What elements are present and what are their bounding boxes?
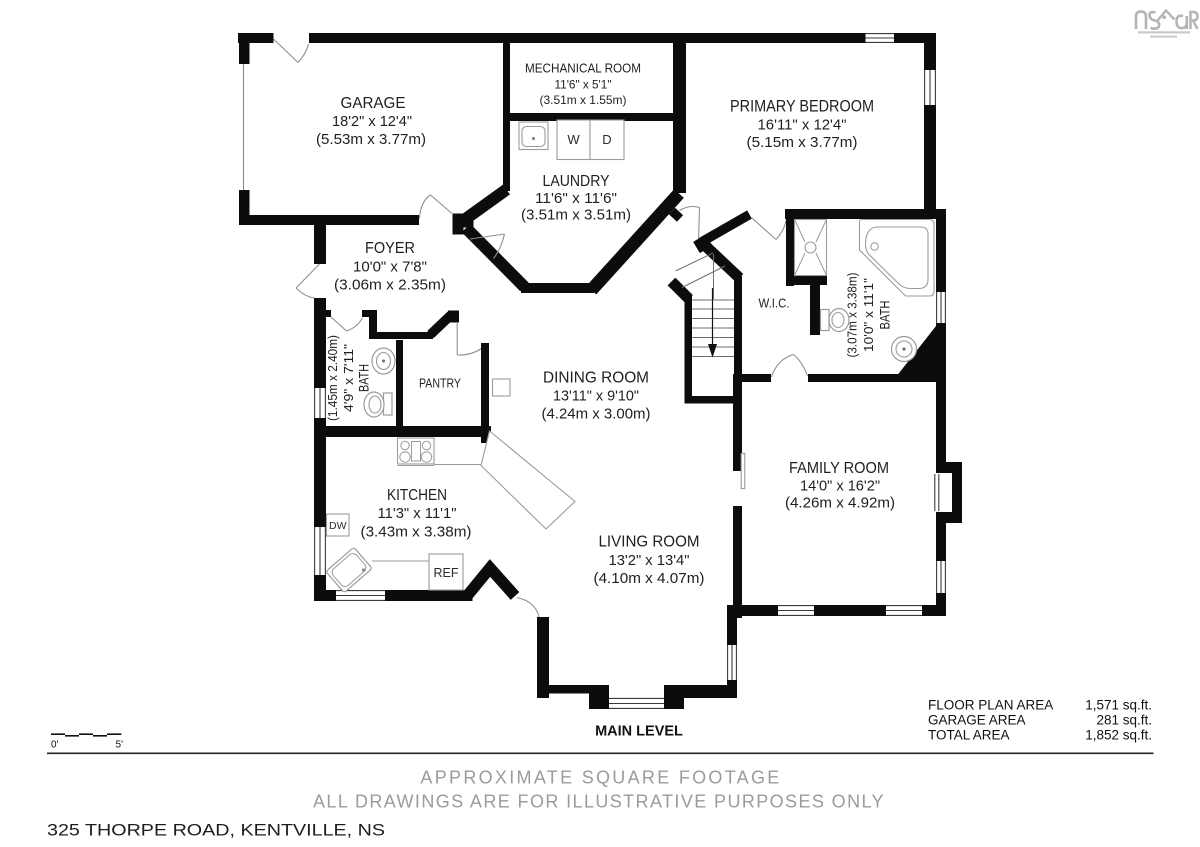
- svg-text:4'9" x 7'11": 4'9" x 7'11": [341, 344, 356, 412]
- svg-text:MAIN LEVEL: MAIN LEVEL: [595, 724, 683, 740]
- svg-text:11'6" x 11'6": 11'6" x 11'6": [535, 190, 617, 207]
- svg-text:DINING ROOM: DINING ROOM: [543, 370, 649, 387]
- svg-text:LIVING ROOM: LIVING ROOM: [599, 534, 700, 551]
- svg-text:KITCHEN: KITCHEN: [387, 487, 447, 504]
- svg-text:DW: DW: [329, 520, 347, 532]
- svg-text:(3.07m x 3.38m): (3.07m x 3.38m): [845, 273, 860, 358]
- svg-text:14'0" x 16'2": 14'0" x 16'2": [800, 478, 880, 495]
- svg-text:LAUNDRY: LAUNDRY: [543, 173, 610, 190]
- svg-text:0': 0': [51, 740, 59, 751]
- svg-text:11'6" x 5'1": 11'6" x 5'1": [555, 78, 612, 92]
- svg-text:13'11" x 9'10": 13'11" x 9'10": [553, 388, 639, 405]
- svg-text:10'0" x 7'8": 10'0" x 7'8": [353, 259, 427, 276]
- svg-text:325 THORPE ROAD, KENTVILLE, NS: 325 THORPE ROAD, KENTVILLE, NS: [47, 821, 385, 840]
- svg-text:BATH: BATH: [357, 364, 372, 392]
- svg-text:(5.53m x 3.77m): (5.53m x 3.77m): [316, 131, 426, 148]
- svg-text:(4.10m x 4.07m): (4.10m x 4.07m): [594, 570, 705, 587]
- svg-text:11'3" x 11'1": 11'3" x 11'1": [378, 505, 457, 522]
- svg-text:5': 5': [116, 740, 124, 751]
- svg-text:(4.26m x 4.92m): (4.26m x 4.92m): [785, 495, 895, 512]
- svg-text:GARAGE: GARAGE: [341, 95, 406, 112]
- svg-text:D: D: [602, 132, 611, 147]
- svg-text:(5.15m x 3.77m): (5.15m x 3.77m): [747, 134, 858, 151]
- svg-text:(3.43m x 3.38m): (3.43m x 3.38m): [361, 524, 472, 541]
- svg-text:13'2" x 13'4": 13'2" x 13'4": [609, 552, 690, 569]
- svg-text:(1.45m x 2.40m): (1.45m x 2.40m): [325, 335, 340, 421]
- svg-text:FOYER: FOYER: [365, 240, 415, 257]
- svg-text:18'2" x 12'4": 18'2" x 12'4": [332, 113, 412, 130]
- svg-text:MECHANICAL ROOM: MECHANICAL ROOM: [525, 62, 641, 76]
- svg-text:FLOOR PLAN AREA: FLOOR PLAN AREA: [928, 698, 1053, 713]
- svg-text:REF: REF: [434, 566, 459, 580]
- svg-text:PANTRY: PANTRY: [419, 376, 461, 391]
- svg-text:FAMILY ROOM: FAMILY ROOM: [789, 460, 889, 477]
- svg-text:GARAGE AREA: GARAGE AREA: [928, 713, 1026, 728]
- svg-text:1,852 sq.ft.: 1,852 sq.ft.: [1085, 728, 1152, 743]
- svg-text:ALL DRAWINGS ARE FOR ILLUSTRAT: ALL DRAWINGS ARE FOR ILLUSTRATIVE PURPOS…: [313, 792, 885, 812]
- svg-text:(4.24m x 3.00m): (4.24m x 3.00m): [542, 406, 651, 423]
- svg-text:BATH: BATH: [877, 301, 893, 330]
- svg-text:16'11" x 12'4": 16'11" x 12'4": [758, 117, 847, 134]
- svg-text:(3.51m x 1.55m): (3.51m x 1.55m): [540, 93, 627, 107]
- svg-text:W: W: [567, 132, 580, 147]
- svg-text:(3.51m x 3.51m): (3.51m x 3.51m): [521, 207, 631, 224]
- svg-text:10'0" x 11'1": 10'0" x 11'1": [861, 278, 876, 352]
- svg-text:APPROXIMATE SQUARE FOOTAGE: APPROXIMATE SQUARE FOOTAGE: [420, 768, 781, 788]
- svg-text:W.I.C.: W.I.C.: [759, 297, 790, 311]
- svg-text:PRIMARY BEDROOM: PRIMARY BEDROOM: [730, 98, 874, 116]
- svg-text:(3.06m x 2.35m): (3.06m x 2.35m): [334, 277, 446, 294]
- svg-text:281 sq.ft.: 281 sq.ft.: [1096, 713, 1152, 728]
- svg-text:TOTAL AREA: TOTAL AREA: [928, 728, 1010, 743]
- svg-text:1,571 sq.ft.: 1,571 sq.ft.: [1085, 698, 1152, 713]
